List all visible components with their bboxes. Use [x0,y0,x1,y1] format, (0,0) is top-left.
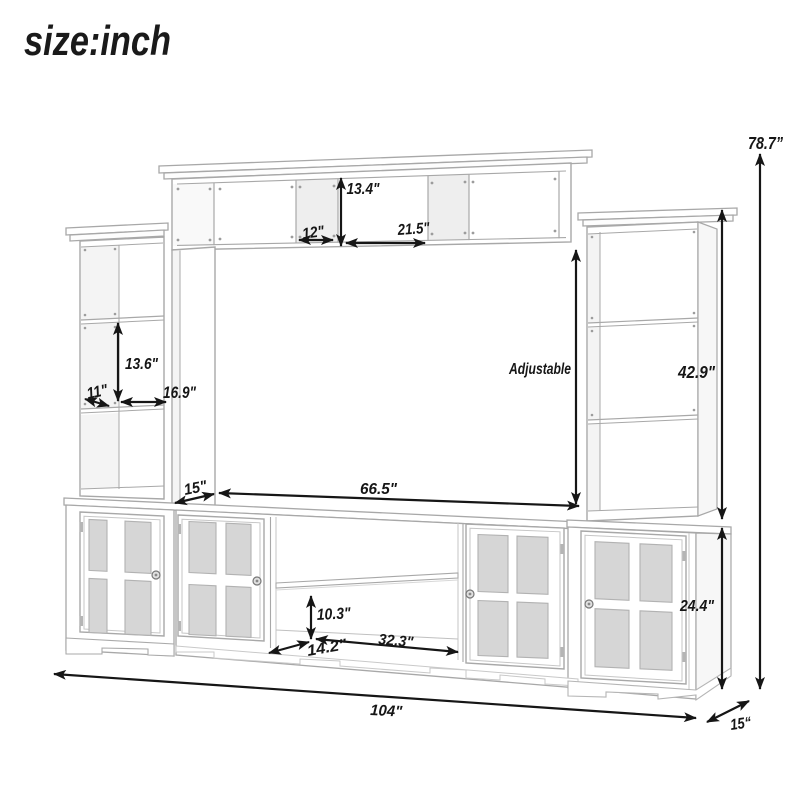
svg-text:13.6": 13.6" [125,356,158,373]
svg-text:21.5": 21.5" [396,220,430,239]
svg-text:32.3": 32.3" [378,631,415,651]
svg-text:size:inch: size:inch [24,17,171,64]
svg-text:66.5": 66.5" [360,481,397,498]
svg-text:12": 12" [301,223,326,243]
svg-text:78.7”: 78.7” [748,133,783,153]
svg-text:15“: 15“ [729,714,752,734]
svg-text:16.9": 16.9" [163,384,196,402]
svg-text:10.3": 10.3" [316,605,351,624]
svg-text:Adjustable: Adjustable [508,361,571,378]
svg-text:104": 104" [370,702,403,721]
svg-text:42.9": 42.9" [677,362,715,382]
svg-text:13.4": 13.4" [347,181,381,198]
svg-text:24.4": 24.4" [679,598,714,615]
